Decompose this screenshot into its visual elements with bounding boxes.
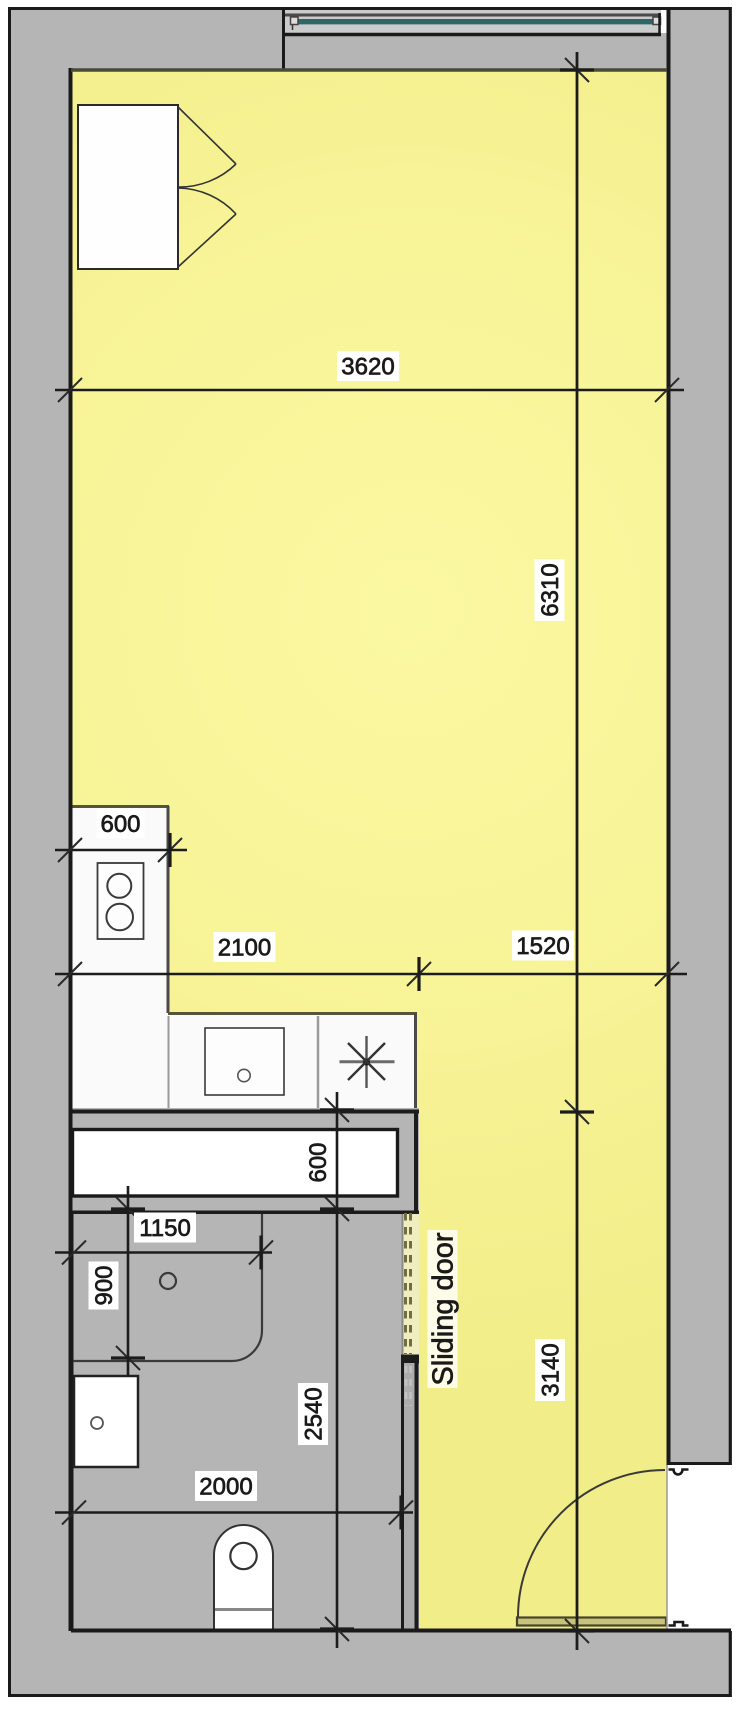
svg-text:2100: 2100 [218, 935, 271, 962]
svg-text:1520: 1520 [516, 933, 569, 960]
svg-text:2540: 2540 [301, 1387, 328, 1440]
svg-text:Sliding door: Sliding door [428, 1232, 460, 1385]
svg-text:3140: 3140 [538, 1343, 565, 1396]
svg-text:3620: 3620 [341, 354, 394, 381]
svg-text:900: 900 [91, 1265, 118, 1305]
svg-text:2000: 2000 [199, 1474, 252, 1501]
svg-text:1150: 1150 [139, 1215, 191, 1242]
svg-text:6310: 6310 [537, 563, 564, 616]
svg-text:600: 600 [100, 811, 140, 838]
svg-text:600: 600 [305, 1142, 332, 1182]
